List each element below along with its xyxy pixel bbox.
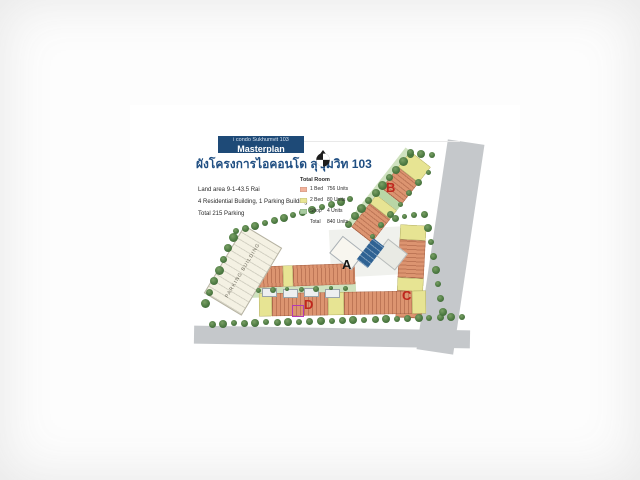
tree-icon [361, 317, 367, 323]
tree-icon [370, 234, 375, 239]
tree-icon [428, 239, 434, 245]
legend-row-shop: Shop 4 Units [300, 208, 348, 214]
legend-row-1bed: 1 Bed 756 Units [300, 186, 348, 192]
tree-icon [296, 319, 302, 325]
tree-icon [329, 318, 335, 324]
tree-icon [382, 315, 390, 323]
tree-icon [392, 166, 400, 174]
legend-value: 756 Units [327, 186, 348, 192]
masterplan-scan: i condo Sukhumvit 103 Masterplan ผังโครง… [0, 0, 640, 480]
tree-icon [392, 215, 399, 222]
land-area-text: Land area 9-1-43.5 Rai [198, 187, 307, 193]
tree-icon [430, 253, 437, 260]
project-badge: i condo Sukhumvit 103 Masterplan [218, 136, 304, 153]
tree-icon [429, 152, 435, 158]
tree-icon [201, 299, 210, 308]
legend-row-2bed: 2 Bed 80 Units [300, 197, 348, 203]
plan-marker-square [292, 305, 304, 317]
buildings-text: 4 Residential Building, 1 Parking Buildi… [198, 199, 307, 205]
tree-icon [343, 286, 348, 291]
north-arrow-icon [314, 150, 332, 168]
building-c-yellow-block [400, 224, 427, 240]
page-title: ผังโครงการไอคอนโด สุขุมวิท 103 [196, 155, 372, 174]
tree-icon [299, 287, 304, 292]
tree-icon [219, 320, 227, 328]
tree-icon [432, 266, 440, 274]
legend-label: Shop [310, 208, 327, 214]
label-building-b: B [386, 180, 395, 195]
tree-icon [242, 225, 249, 232]
tree-icon [220, 256, 227, 263]
project-info: Land area 9-1-43.5 Rai 4 Residential Bui… [198, 187, 307, 223]
legend-label: 2 Bed [310, 197, 327, 203]
tree-icon [407, 149, 414, 156]
legend-label: Total [310, 219, 327, 225]
tree-icon [256, 288, 261, 293]
legend-row-total: Total 840 Units [300, 219, 348, 225]
tree-icon [339, 317, 346, 324]
scan-artifact-line [304, 141, 460, 142]
tree-icon [270, 287, 276, 293]
masterplan-label: Masterplan [218, 145, 304, 154]
tree-icon [424, 224, 432, 232]
tree-icon [398, 202, 403, 207]
label-building-a: A [342, 257, 351, 272]
legend-title: Total Room [300, 177, 348, 183]
tree-icon [439, 308, 447, 316]
tree-icon [317, 317, 325, 325]
tree-icon [233, 228, 239, 234]
canopy-structure [325, 289, 340, 298]
tree-icon [372, 189, 380, 197]
tree-icon [435, 281, 441, 287]
legend-swatch-shop [300, 209, 307, 214]
label-building-d: D [304, 297, 313, 312]
legend-value: 840 Units [327, 219, 348, 225]
project-name: i condo Sukhumvit 103 [218, 136, 304, 144]
tree-icon [206, 289, 213, 296]
legend-value: 80 Units [327, 197, 345, 203]
tree-icon [417, 150, 425, 158]
building-a-yellow-block [283, 265, 294, 286]
tree-icon [284, 318, 292, 326]
legend-swatch-2bed [300, 198, 307, 203]
tree-icon [329, 286, 333, 290]
tree-icon [399, 157, 408, 166]
tree-icon [372, 316, 379, 323]
building-d-yellow-block [412, 291, 426, 314]
tree-icon [313, 286, 319, 292]
legend-swatch-1bed [300, 187, 307, 192]
tree-icon [415, 314, 423, 322]
unit-legend: Total Room 1 Bed 756 Units 2 Bed 80 Unit… [300, 177, 348, 230]
tree-icon [394, 316, 400, 322]
legend-label: 1 Bed [310, 186, 327, 192]
tree-icon [241, 320, 248, 327]
tree-icon [274, 319, 281, 326]
tree-icon [421, 211, 428, 218]
tree-icon [215, 266, 224, 275]
parking-text: Total 215 Parking [198, 211, 307, 217]
tree-icon [437, 295, 444, 302]
tree-icon [459, 314, 465, 320]
legend-value: 4 Units [327, 208, 343, 214]
tree-icon [426, 170, 431, 175]
label-building-c: C [402, 288, 411, 303]
tree-icon [209, 321, 216, 328]
